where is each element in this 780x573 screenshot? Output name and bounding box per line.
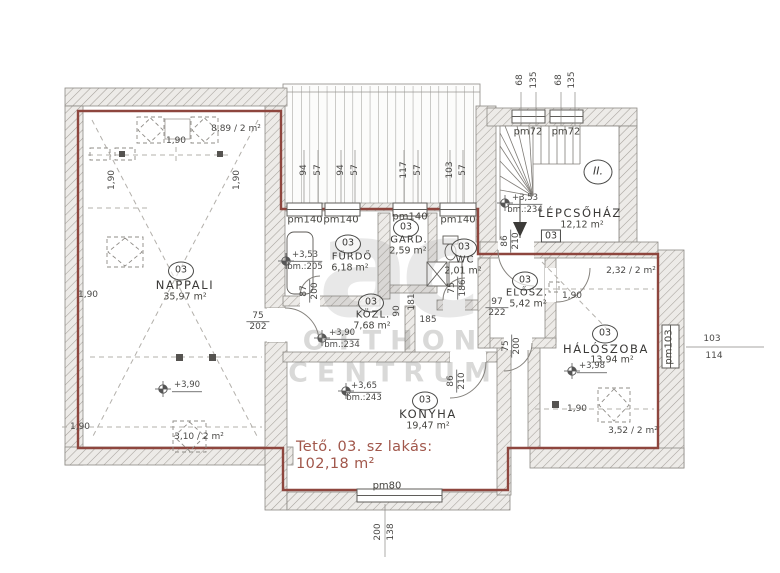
dim-label-roof-1: 94 [299, 164, 309, 175]
dim-label-roof-2: 57 [313, 164, 323, 175]
level-marker-kozl: +3,90bm.:234 [324, 328, 359, 350]
room-name-nappali: NAPPALI [156, 278, 214, 292]
dim-label-190-left-v: 1,90 [107, 170, 117, 190]
room-area-lepcsohaz: 12,12 m² [560, 220, 603, 231]
window-label-pm140-1: pm140 [287, 215, 322, 226]
dim-label-roof-7: 103 [445, 161, 455, 178]
dim-label-181: 181 [407, 293, 417, 310]
room-number-badge-haloszoba: 03 [592, 325, 618, 344]
chimney-area-label-top-right: 2,32 / 2 m² [606, 266, 656, 276]
dim-label-roof-4: 57 [350, 164, 360, 175]
room-area-gard: 2,59 m² [389, 246, 426, 257]
door-dim-entry: 86210 [500, 229, 522, 252]
level-marker-furdo: +3,53bm.:205 [287, 250, 322, 272]
window-label-pm140-4: pm140 [440, 215, 475, 226]
chimney-area-label-bottom-right: 3,52 / 2 m² [608, 426, 658, 436]
window-label-pm140-2: pm140 [323, 215, 358, 226]
summary-area: 102,18 m² [296, 456, 375, 472]
window-label-pm80: pm80 [373, 481, 402, 492]
room-name-furdo: FÜRDŐ [332, 252, 373, 263]
room-name-kozl: KÖZL. [356, 310, 390, 321]
room-name-elosz: ELŐSZ. [506, 288, 548, 299]
room-area-wc: 2,01 m² [444, 266, 481, 277]
watermark-text-line2: CENTRUM [288, 358, 500, 389]
dim-label-185: 185 [419, 315, 436, 325]
dim-label-190-halo-bottom: 1,90 [567, 404, 587, 414]
door-dim-konyha: 86210 [446, 369, 468, 392]
room-name-gard: GARD. [390, 235, 427, 246]
dim-label-roof-5: 117 [399, 161, 409, 178]
room-area-furdo: 6,18 m² [331, 263, 368, 274]
dim-label-roof-8: 57 [458, 164, 468, 175]
dim-label-stair-4: 135 [567, 71, 577, 88]
level-marker-konyha: +3,65bm.:243 [346, 381, 381, 403]
dim-label-win-bottom-b: 138 [386, 523, 396, 540]
window-label-pm72-2: pm72 [552, 127, 581, 138]
window-label-pm72-1: pm72 [514, 127, 543, 138]
door-dim-nappali: 75202 [246, 311, 269, 333]
dim-label-stair-3: 68 [554, 74, 564, 85]
dim-label-stair-1: 68 [515, 74, 525, 85]
dim-label-190-top: 1,90 [166, 136, 186, 146]
floorplan-page: ac OTTHON CENTRUM 03 03 03 03 03 03 03 0… [0, 0, 780, 573]
dim-label-190-right-v: 1,90 [232, 170, 242, 190]
door-dim-furdo: 87200 [299, 279, 321, 302]
window-label-pm140-3: pm140 [392, 212, 427, 223]
room-area-konyha: 19,47 m² [406, 421, 449, 432]
dim-label-190-left-mid: 1,90 [78, 290, 98, 300]
room-area-nappali: 35,97 m² [163, 292, 206, 303]
dim-label-win-bottom-t: 200 [373, 523, 383, 540]
room-name-wc: WC [456, 255, 475, 266]
dim-label-190-bottom-left: 1,90 [70, 422, 90, 432]
dim-label-roof-6: 57 [413, 164, 423, 175]
chimney-area-label-bottom-left: 3,10 / 2 m² [174, 432, 224, 442]
summary-title: Tető. 03. sz lakás: [296, 439, 433, 455]
dim-label-win-right-b: 114 [705, 351, 722, 361]
room-area-elosz: 5,42 m² [509, 299, 546, 310]
room-name-konyha: KONYHA [399, 407, 457, 421]
window-label-pm103: pm103 [664, 329, 675, 364]
door-dim-wc: 75186 [447, 276, 469, 299]
dim-label-stair-2: 135 [529, 71, 539, 88]
level-marker-haloszoba: +3,98 [577, 361, 607, 373]
chimney-area-label-top-left: 8,89 / 2 m² [211, 124, 261, 134]
dim-label-roof-3: 94 [336, 164, 346, 175]
dim-label-190-halo-top: 1,90 [562, 291, 582, 301]
dim-label-90: 90 [392, 305, 402, 316]
level-marker-nappali: +3,90 [172, 380, 202, 392]
entry-unit-box: 03 [541, 230, 561, 243]
stair-level-badge: II. [584, 160, 613, 185]
door-dim-elosz: 97222 [485, 297, 508, 319]
door-dim-elosz-b: 75200 [501, 334, 523, 357]
room-name-lepcsohaz: LÉPCSŐHÁZ [538, 206, 622, 220]
level-marker-lepcsohaz: +3,53bm.:234 [507, 193, 542, 215]
dim-label-win-right-t: 103 [703, 334, 720, 344]
